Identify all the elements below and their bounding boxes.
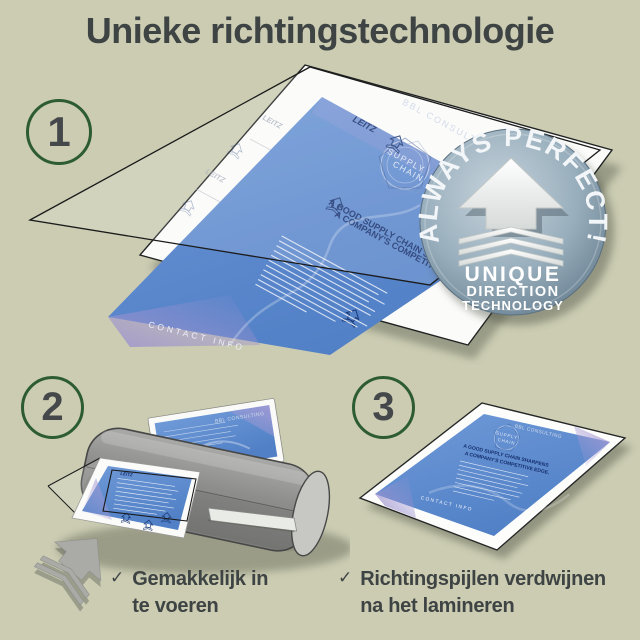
- input-document: LEITZ: [48, 458, 200, 538]
- caption-arrows-disappear: ✓ Richtingspijlen verdwijnen na het lami…: [338, 566, 606, 620]
- caption-easy-feed-line2: te voeren: [132, 593, 268, 620]
- caption-arrows-disappear-line1: Richtingspijlen verdwijnen: [360, 566, 606, 593]
- checkmark-icon: ✓: [338, 568, 352, 620]
- page-title: Unieke richtingstechnologie: [0, 10, 640, 52]
- checkmark-icon: ✓: [110, 568, 124, 620]
- infographic: Unieke richtingstechnologie 1 2 3: [0, 0, 640, 640]
- caption-easy-feed-line1: Gemakkelijk in: [132, 566, 268, 593]
- badge-line1: UNIQUE: [465, 263, 562, 286]
- caption-easy-feed: ✓ Gemakkelijk in te voeren: [110, 566, 268, 620]
- badge-line3: TECHNOLOGY: [462, 298, 564, 313]
- scene-insert-pouch: LEITZ LEITZ LEITZ LEITZ BBL CONSULTING S…: [0, 55, 640, 365]
- caption-arrows-disappear-line2: na het lamineren: [360, 593, 606, 620]
- scene-laminated-result: SUPPLY CHAIN A GOOD SUPPLY CHAIN SHARPEN…: [340, 378, 640, 588]
